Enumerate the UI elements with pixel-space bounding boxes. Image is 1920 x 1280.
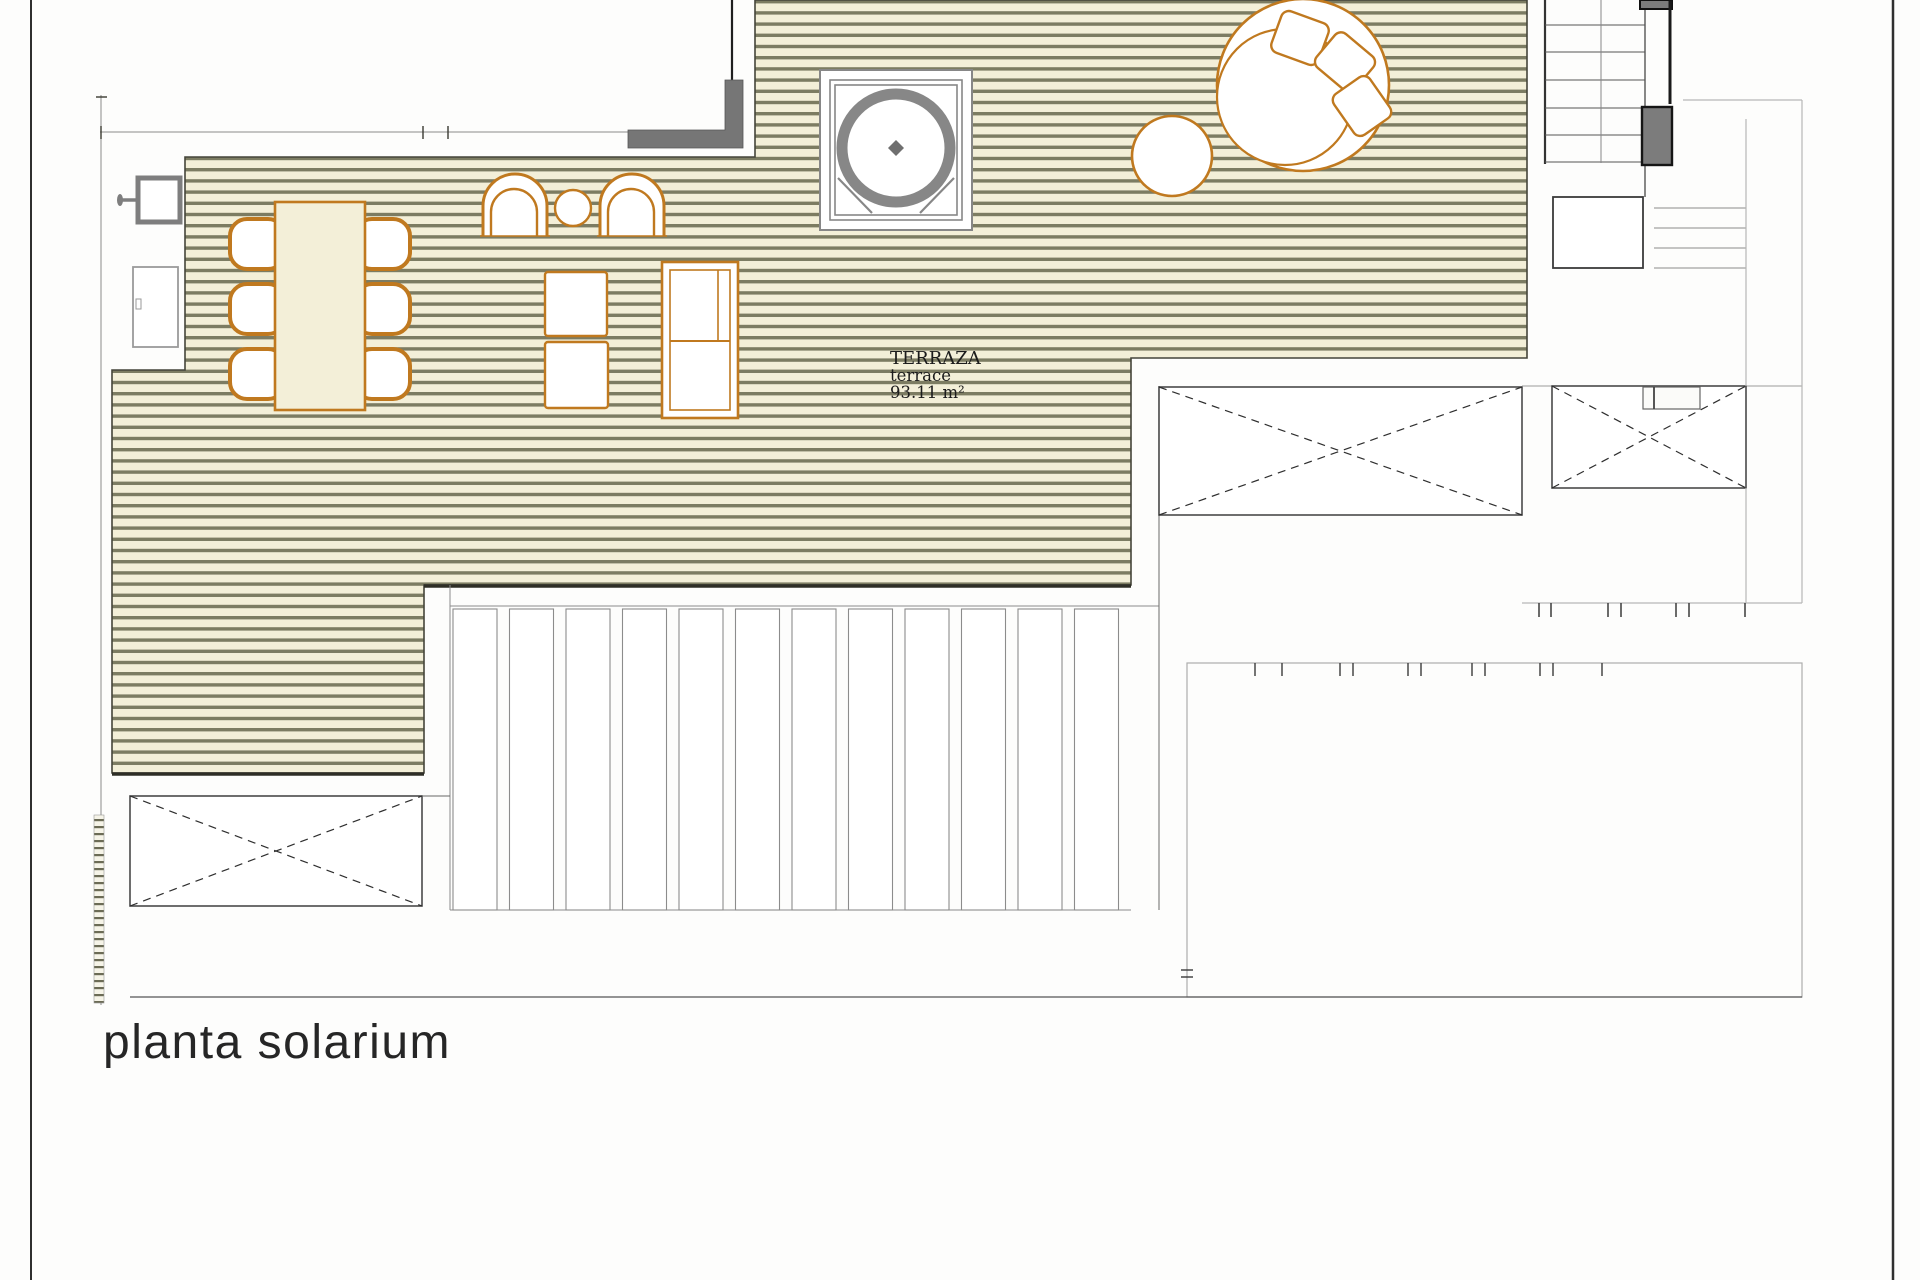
lower-roof-ticks	[1181, 663, 1602, 977]
wall-corner-fill	[628, 80, 743, 148]
pergola-board	[1075, 609, 1119, 910]
jacuzzi	[820, 70, 972, 230]
wall-corner	[628, 0, 743, 148]
wall-hatch-strip	[94, 815, 104, 1003]
pergola-board	[849, 609, 893, 910]
pergola-board	[792, 609, 836, 910]
stair-landing	[1553, 197, 1643, 268]
pergola-board	[905, 609, 949, 910]
pergola-board	[510, 609, 554, 910]
lounge-pouf	[545, 342, 608, 408]
dining-set	[230, 202, 410, 410]
stair-wall-block-top	[1640, 0, 1672, 9]
stairwell	[1522, 0, 1802, 617]
room-area: 93.11 m²	[890, 383, 965, 402]
pergola-board	[962, 609, 1006, 910]
pergola-board	[453, 609, 497, 910]
left-fixtures	[117, 178, 180, 347]
dining-table	[275, 202, 365, 410]
outdoor-shower	[138, 178, 180, 222]
stair-zone-ticks	[1539, 603, 1745, 617]
plan-title: planta solarium	[103, 1016, 451, 1069]
pergola-board	[679, 609, 723, 910]
void-box-notch	[1643, 387, 1700, 409]
daybed-pouf	[1132, 116, 1212, 196]
egg-chair-inner	[608, 189, 654, 236]
stair-zone-outline	[1522, 100, 1802, 603]
drawing-sheet: TERRAZA terrace 93.11 m² planta solarium	[0, 0, 1920, 1280]
pergola-board-set	[453, 609, 1119, 910]
access-door	[133, 267, 178, 347]
pergola-board	[566, 609, 610, 910]
egg-chair-inner	[491, 189, 537, 236]
stair-treads-upper	[1545, 25, 1645, 162]
pergola-board	[623, 609, 667, 910]
stair-wall-block-mid	[1642, 107, 1672, 165]
stair-treads-lower	[1654, 208, 1746, 268]
lower-roof-outline	[1187, 663, 1802, 997]
pergola-board	[736, 609, 780, 910]
shower-valve-knob	[117, 194, 123, 206]
pergola-board	[1018, 609, 1062, 910]
floor-plan-svg: TERRAZA terrace 93.11 m² planta solarium	[0, 0, 1920, 1280]
lounge-side-table	[555, 190, 591, 226]
lounge-pouf	[545, 272, 607, 336]
